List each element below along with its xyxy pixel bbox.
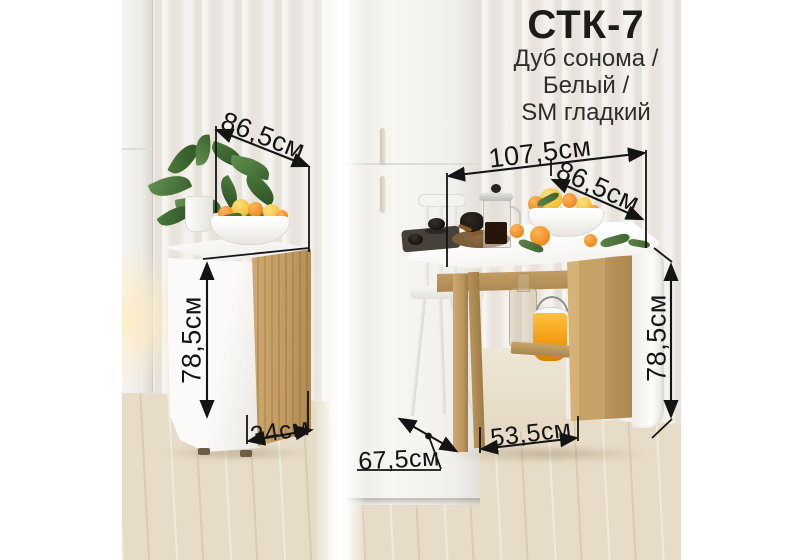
product-image: 86,5см 78,5см 34см 107,5см 86,5см 78,5см… — [0, 0, 800, 560]
table-shadow — [442, 446, 652, 462]
plant-pot — [185, 196, 213, 232]
finish-line-3: SM гладкий — [486, 100, 686, 127]
finish-line-2: Белый / — [486, 73, 686, 100]
french-press-lid — [479, 193, 513, 201]
dim-unfolded-height-label: 78,5см — [642, 294, 673, 382]
french-press-knob — [491, 184, 501, 193]
orange-fruit — [584, 234, 597, 247]
cabinet-handle — [380, 176, 385, 212]
orange-fruit — [562, 193, 577, 208]
title-block: СТК-7 Дуб сонома / Белый / SM гладкий — [486, 4, 686, 127]
coffee-cup — [428, 218, 445, 230]
dim-folded-height-label: 78,5см — [177, 296, 208, 384]
cabinet-handle — [380, 128, 385, 164]
cabinet-seam — [122, 148, 152, 150]
orange-fruit — [510, 224, 524, 238]
french-press-coffee — [485, 222, 507, 244]
table-leg — [453, 274, 468, 452]
plant-leaf — [194, 134, 213, 165]
glass-bottle-neck — [517, 273, 530, 292]
dim-unfolded-depth-label: 67,5см — [358, 443, 441, 476]
finish-line-1: Дуб сонома / — [486, 46, 686, 73]
table-foot — [240, 450, 252, 457]
orange-fruit — [248, 202, 263, 217]
table-foot — [198, 448, 210, 455]
product-model: СТК-7 — [486, 4, 686, 46]
coffee-cup — [408, 234, 423, 245]
